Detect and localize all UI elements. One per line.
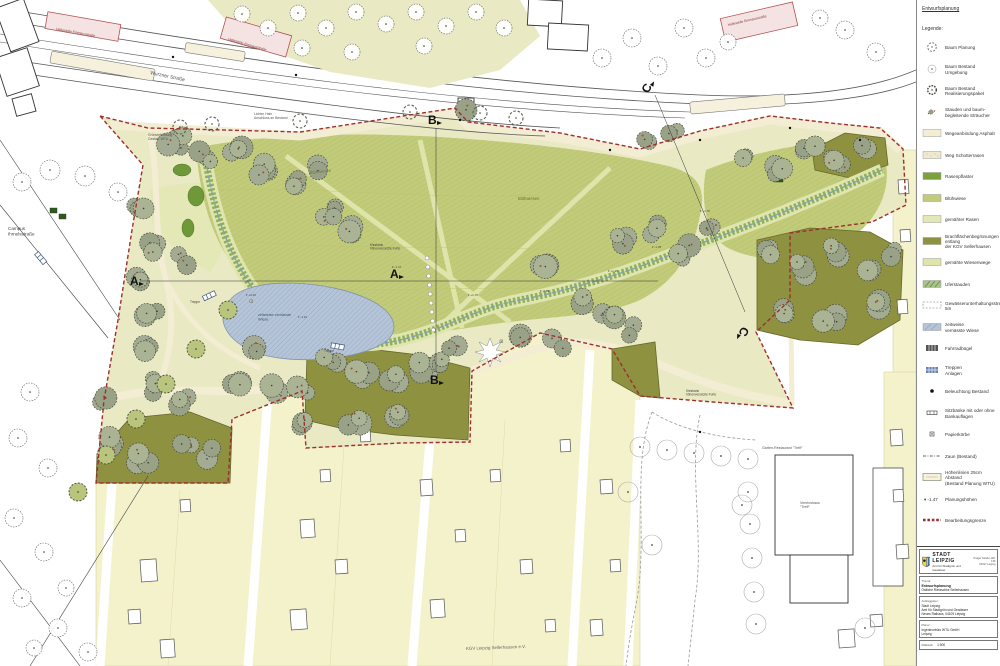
hoehen-icon [922, 469, 942, 487]
section-marker-b: B [428, 113, 437, 127]
section-marker-b: B [430, 373, 439, 387]
legend-item-tree-bestand-r: Baum Bestand Realisierungspaket [922, 82, 997, 100]
legend-item-grid-dark: Fahrradbügel [922, 340, 997, 358]
sw-schotter-icon [922, 147, 942, 165]
legend-item-zaun: Zaun (Bestand) [922, 448, 997, 466]
legend-item-label: Brachflächenbegrünungen entlang der KGV … [945, 234, 999, 249]
title-block-city: STADT LEIPZIG [932, 552, 970, 564]
legend-item-label: Gewässerunterhaltungsstreifen 5m [945, 301, 1000, 311]
elevation-label: ▾ -1.10 [298, 315, 308, 319]
elevation-label: ▾ +1.70 [700, 209, 710, 213]
elev-icon: ▾ -1.47 [922, 491, 942, 509]
legend-item-sw-ufer: Uferstauden [922, 276, 997, 294]
legend-item-label: Planungshöhen [945, 497, 977, 502]
sw-dark-icon [922, 168, 942, 186]
dot-icon [922, 383, 942, 401]
legend-item-label: Treppen Anlagen [945, 365, 962, 375]
legend-item-sw-gew: Gewässerunterhaltungsstreifen 5m [922, 297, 997, 315]
legend-item-bench: Sitzbänke mit oder ohne Bankauflagen [922, 405, 997, 423]
tree-bestand-r-icon [922, 82, 942, 100]
sw-vern-icon [922, 319, 942, 337]
legend-item-label: gemähte Wiesenwege [945, 260, 990, 265]
legend-item-label: Höhenlinien 25cm Abstand (Bestand Planun… [945, 470, 997, 485]
tree-bestand-u-icon [922, 61, 942, 79]
elevation-label: ▾ +1.25 [608, 269, 618, 273]
map-label-treppe1: Treppe [190, 300, 200, 304]
legend-item-label: Baum Bestand Realisierungspaket [945, 86, 984, 96]
title-block-scale: Maßstab: 1:500 [919, 640, 998, 650]
legend-item-label: Blühwiese [945, 196, 966, 201]
svg-text:▾ -1.47: ▾ -1.47 [924, 497, 938, 502]
legend-item-label: Fahrradbügel [945, 346, 972, 351]
grid-blue-icon [922, 362, 942, 380]
section-marker-a: A [130, 274, 139, 288]
site-plan-map: Wurzner StraßeHaltestelle EmmausstraßeHa… [0, 0, 916, 666]
legend-item-label: Weg Schotterrasen [945, 153, 984, 158]
title-block-address: Prager Straße 118-136 04317 Leipzig [972, 557, 995, 566]
leipzig-coat-of-arms-icon [922, 556, 931, 568]
legend: Entwurfsplanung Legende: Baum PlanungBau… [917, 0, 1000, 530]
shrub-icon [922, 104, 942, 122]
side-panel: Entwurfsplanung Legende: Baum PlanungBau… [916, 0, 1000, 666]
title-block-client: Auftraggeber: Stadt Leipzig Amt für Stad… [919, 596, 998, 618]
tree-plan-icon [922, 39, 942, 57]
elevation-label: ▾ -0.85 [540, 289, 550, 293]
title-block: STADT LEIPZIG Amt für Stadtgrün und Gewä… [917, 546, 1000, 666]
legend-item-sw-blueh: Blühwiese [922, 190, 997, 208]
legend-item-label: Zaun (Bestand) [945, 454, 977, 459]
legend-item-label: Wegeanbindung Asphalt [945, 131, 995, 136]
document-title: Entwurfsplanung [922, 6, 997, 12]
title-block-thema: Thema: Entwurfsplanung Östliche Rietzsch… [919, 576, 998, 594]
legend-item-label: Stauden und baum- begleitende Sträucher [945, 107, 990, 117]
legend-item-label: Papierkörbe [945, 432, 970, 437]
legend-item-sw-wweg: gemähte Wiesenwege [922, 254, 997, 272]
legend-item-tree-plan: Baum Planung [922, 39, 997, 57]
legend-item-grid-blue: Treppen Anlagen [922, 362, 997, 380]
legend-item-label: zeitweise vernässte Wiese [945, 322, 979, 332]
legend-item-label: Baum Planung [945, 45, 975, 50]
legend-item-hoehen: Höhenlinien 25cm Abstand (Bestand Planun… [922, 469, 997, 487]
legend-item-label: gemähter Rasen [945, 217, 979, 222]
title-block-header: STADT LEIPZIG Amt für Stadtgrün und Gewä… [919, 549, 998, 574]
sw-brach-icon [922, 233, 942, 251]
elevation-label: ▾ +1.70 [468, 293, 478, 297]
legend-item-label: Uferstauden [945, 282, 970, 287]
tree-group [308, 155, 328, 180]
sw-rasen-icon [922, 211, 942, 229]
zaun-icon [922, 448, 942, 466]
legend-item-sw-brach: Brachflächenbegrünungen entlang der KGV … [922, 233, 997, 251]
legend-item-dot: Beleuchtung Bestand [922, 383, 997, 401]
tree-group [509, 324, 532, 347]
map-label-treppe2: Treppe [324, 349, 334, 353]
legend-item-sw-schotter: Weg Schotterrasen [922, 147, 997, 165]
legend-item-label: Bearbeitungsgrenze [945, 518, 986, 523]
legend-item-sw-asphalt: Wegeanbindung Asphalt [922, 125, 997, 143]
red-dash-icon [922, 512, 942, 530]
legend-item-sw-dark: Rasenpflaster [922, 168, 997, 186]
map-label-rest: Garten-Restaurant "Treff" [762, 446, 803, 450]
legend-item-sw-rasen: gemähter Rasen [922, 211, 997, 229]
elevation-label: ▾ +0.45 [246, 293, 256, 297]
bin-icon [922, 426, 942, 444]
elevation-label: ▾ -1.35 [652, 245, 662, 249]
legend-item-elev: ▾ -1.47Planungshöhen [922, 491, 997, 509]
grid-dark-icon [922, 340, 942, 358]
legend-item-label: Sitzbänke mit oder ohne Bankauflagen [945, 408, 995, 418]
title-block-office: Amt für Stadtgrün und Gewässer [932, 564, 970, 572]
tree-group [867, 290, 891, 319]
legend-item-bin: Papierkörbe [922, 426, 997, 444]
sw-blueh-icon [922, 190, 942, 208]
legend-item-tree-bestand-u: Baum Bestand Umgebung [922, 61, 997, 79]
plan-sheet: Wurzner StraßeHaltestelle EmmausstraßeHa… [0, 0, 1000, 666]
title-block-planner: Planer: Ingenieurbüro WTU GmbH Leipzig [919, 620, 998, 638]
legend-item-label: Baum Bestand Umgebung [945, 64, 997, 74]
sw-asphalt-icon [922, 125, 942, 143]
sw-ufer-icon [922, 276, 942, 294]
sw-wweg-icon [922, 254, 942, 272]
sw-gew-icon [922, 297, 942, 315]
section-marker-a: A [390, 267, 399, 281]
legend-item-label: Rasenpflaster [945, 174, 973, 179]
bench-icon [922, 405, 942, 423]
legend-title: Legende: [922, 26, 997, 32]
legend-item-label: Beleuchtung Bestand [945, 389, 989, 394]
legend-item-shrub: Stauden und baum- begleitende Sträucher [922, 104, 997, 122]
tree-group [455, 99, 477, 121]
legend-item-sw-vern: zeitweise vernässte Wiese [922, 319, 997, 337]
legend-item-red-dash: Bearbeitungsgrenze [922, 512, 997, 530]
map-label-bw2: Blühwiesen [518, 196, 540, 201]
